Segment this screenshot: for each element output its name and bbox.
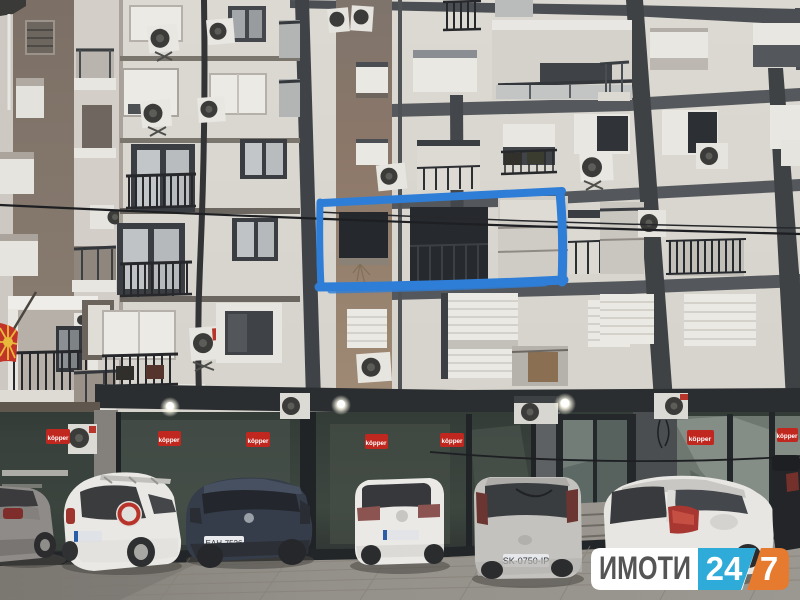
svg-text:köpper: köpper xyxy=(777,433,799,440)
svg-text:ИМОТИ: ИМОТИ xyxy=(599,550,691,586)
svg-text:köpper: köpper xyxy=(442,438,464,445)
svg-text:köpper: köpper xyxy=(366,440,388,447)
svg-text:24: 24 xyxy=(706,550,743,587)
svg-text:köpper: köpper xyxy=(248,438,270,445)
svg-text:köpper: köpper xyxy=(689,436,712,443)
svg-text:7: 7 xyxy=(760,550,778,587)
svg-text:köpper: köpper xyxy=(48,435,70,442)
svg-text:köpper: köpper xyxy=(159,437,181,444)
